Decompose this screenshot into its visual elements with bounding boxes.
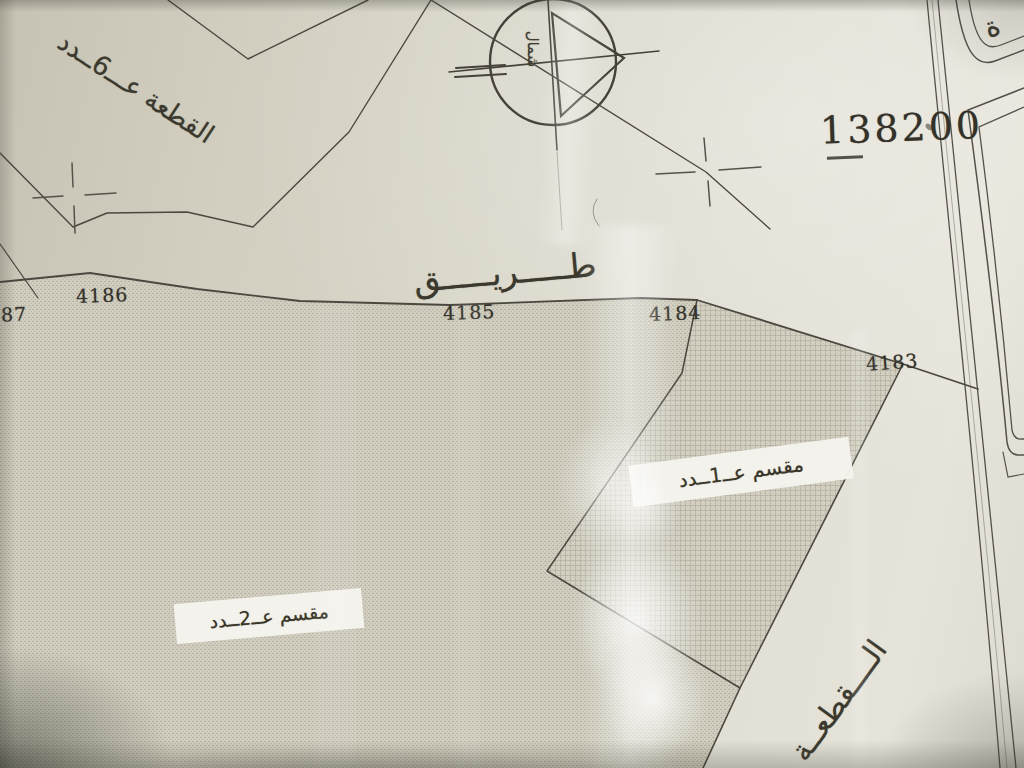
sheet-number: 138200 [819,103,983,153]
compass-horizontal-axis [449,51,659,72]
small-pencil-curve [593,199,599,226]
vertex-label-4186: 4186 [76,283,129,307]
vertex-label-4185: 4185 [443,300,496,324]
subdivision-2-label: مقسم عــ2ــدد [208,600,329,632]
cross-mark-east [656,138,761,206]
hatched-parcels [0,273,903,768]
vertex-label-4183: 4183 [865,349,919,375]
upper-v-boundary [168,0,368,59]
cross-mark-west [33,163,116,233]
north-arrow-symbol [449,0,659,230]
vertex-label-4184: 4184 [649,301,702,325]
subdivision-1-label: مقسم عــ1ــدد [677,452,805,492]
north-label: شمال [524,12,542,86]
vertex-label-87: 87 [1,303,28,326]
cadastral-map-photo: القطعة عـــ6ــدد طـــــريـــــق الــــقط… [0,0,1024,768]
compass-vertical-tail [557,152,562,230]
long-diagonal-road-north [431,0,770,229]
survey-cross-marks [33,138,761,233]
compass-triangle [552,13,624,116]
